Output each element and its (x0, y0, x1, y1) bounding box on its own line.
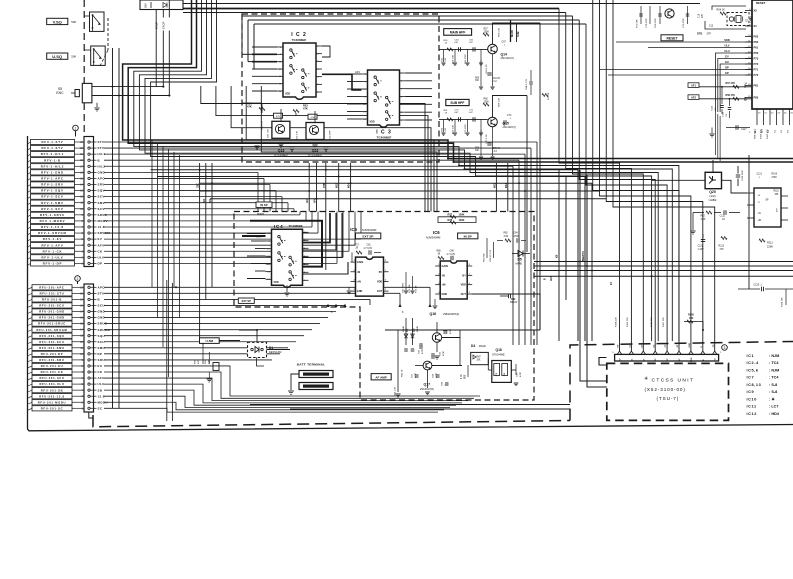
svg-text:TC4066BF: TC4066BF (377, 135, 392, 139)
svg-text:Q15: Q15 (503, 122, 510, 126)
svg-text:IC11: IC11 (747, 405, 757, 409)
svg-text:47K: 47K (276, 116, 280, 118)
svg-text:VULV: VULV (257, 212, 264, 216)
svg-text:IC12: IC12 (747, 412, 757, 416)
svg-text:C75 4V: C75 4V (493, 148, 501, 150)
svg-text:RFV-1-MODV: RFV-1-MODV (40, 219, 66, 223)
svg-text:GND: GND (98, 170, 106, 174)
svg-text:MS3: MS3 (506, 183, 508, 188)
svg-text:SCV: SCV (98, 207, 105, 211)
svg-text:Q17: Q17 (424, 382, 431, 386)
svg-text:MA4D: MA4D (516, 262, 523, 265)
svg-text:MAIN HPF: MAIN HPF (450, 31, 465, 35)
svg-text:1 16V: 1 16V (698, 249, 704, 251)
svg-text:C78 470P: C78 470P (646, 18, 648, 28)
svg-text:C119 100P: C119 100P (742, 170, 744, 181)
svg-text:DP: DP (98, 262, 103, 266)
svg-text:BATT TERMINAL: BATT TERMINAL (297, 362, 326, 366)
svg-text:ULU: ULU (98, 382, 105, 386)
svg-text:470P: 470P (450, 328, 452, 334)
svg-text:R67 1.2K: R67 1.2K (486, 134, 488, 144)
svg-text:P81: P81 (754, 84, 759, 88)
svg-text:VDD: VDD (285, 93, 290, 96)
svg-text:RFU-201-DP: RFU-201-DP (41, 352, 64, 356)
svg-text:RFV-1-H/L1: RFV-1-H/L1 (41, 152, 64, 156)
svg-text:DESSCAM: DESSCAM (269, 351, 281, 354)
svg-text:RESET: RESET (667, 37, 678, 41)
svg-text:47K: 47K (311, 117, 315, 119)
svg-text:RFV-1-EV: RFV-1-EV (43, 237, 62, 241)
svg-text:: S-8: : S-8 (769, 390, 777, 394)
svg-text:SCU: SCU (98, 304, 105, 308)
svg-text:DP: DP (98, 352, 103, 356)
svg-text:R105 22K: R105 22K (627, 317, 629, 327)
svg-text:47K: 47K (720, 248, 725, 251)
svg-text:V.SQ: V.SQ (53, 19, 62, 24)
svg-text:IC8,13: IC8,13 (747, 383, 762, 387)
svg-text:ULU: ULU (724, 49, 729, 53)
svg-text:BY: BY (379, 271, 383, 274)
svg-text:P73: P73 (754, 57, 759, 61)
svg-text:R98 47K: R98 47K (755, 130, 757, 139)
svg-text:2SB1182F5(0): 2SB1182F5(0) (443, 313, 459, 316)
svg-text:: NJM: : NJM (769, 368, 779, 372)
svg-text:RFU-201-SRUGM: RFU-201-SRUGM (37, 328, 68, 332)
svg-text:EXT SP: EXT SP (362, 235, 373, 239)
svg-text:GND: GND (442, 293, 448, 296)
svg-text:SOD: SOD (689, 342, 691, 347)
svg-text:R80: R80 (437, 251, 442, 253)
svg-text:R82: R82 (504, 233, 509, 235)
svg-text:STV: STV (98, 146, 105, 150)
svg-text:NJM3404M: NJM3404M (362, 228, 377, 232)
svg-text:IC1: IC1 (747, 354, 755, 358)
svg-text:C121: C121 (757, 174, 763, 176)
svg-text:C16: C16 (699, 13, 701, 18)
svg-text:R84 1.2K: R84 1.2K (395, 386, 397, 396)
svg-text:+IN: +IN (442, 284, 446, 287)
svg-text:: TC4: : TC4 (769, 361, 779, 365)
svg-text:RFV-1-12.8: RFV-1-12.8 (41, 225, 64, 229)
svg-text:CK: CK (98, 370, 103, 374)
svg-text:SF: SF (766, 199, 770, 202)
svg-text:RFV-1-ULV: RFV-1-ULV (42, 255, 64, 259)
svg-text:IC2-4: IC2-4 (747, 361, 760, 365)
svg-text:AF1: AF1 (691, 83, 696, 87)
svg-text:100K: 100K (459, 213, 465, 216)
svg-text:C117: C117 (741, 128, 747, 131)
svg-text:R87: R87 (477, 357, 482, 359)
svg-text:P71: P71 (754, 68, 759, 72)
svg-text:R74 1K: R74 1K (416, 285, 418, 293)
svg-text:AF2: AF2 (691, 95, 696, 99)
svg-text:AFU: AFU (98, 376, 105, 380)
svg-text:RFV-1-SMV: RFV-1-SMV (41, 201, 64, 205)
svg-text:R60: R60 (475, 77, 480, 79)
svg-text:IC5,6: IC5,6 (747, 368, 759, 372)
svg-text:RFV-1-STV: RFV-1-STV (42, 140, 64, 144)
svg-text:RFU-201-SB: RFU-201-SB (41, 388, 64, 392)
svg-text:R10A 22K: R10A 22K (614, 317, 617, 327)
svg-text:RFU-201-APC: RFU-201-APC (39, 285, 64, 289)
svg-text:R111: R111 (767, 241, 773, 245)
svg-text:RFU-201-GND: RFU-201-GND (39, 316, 64, 320)
svg-text:AF1: AF1 (306, 198, 309, 203)
svg-text:P63: P63 (754, 35, 759, 39)
svg-text:SMV: SMV (98, 201, 105, 205)
svg-text:RFV-1-AFV: RFV-1-AFV (41, 243, 63, 247)
svg-text:D1: D1 (269, 346, 273, 350)
svg-text:RFU-201-SMU: RFU-201-SMU (39, 346, 64, 350)
svg-text:C89 47 6.3V: C89 47 6.3V (490, 249, 492, 262)
svg-text:2SC4116(Y): 2SC4116(Y) (503, 126, 517, 129)
svg-text:✳: ✳ (644, 376, 648, 382)
svg-text:RFV-1-H/L2: RFV-1-H/L2 (41, 164, 64, 168)
svg-text:RFU-201-SC: RFU-201-SC (41, 406, 64, 410)
svg-text:IC9: IC9 (747, 390, 755, 394)
svg-text:SOD: SOD (724, 38, 730, 42)
svg-text:R71 56K: R71 56K (637, 19, 639, 28)
svg-text:MA4D: MA4D (402, 326, 405, 332)
svg-text:50K: 50K (71, 20, 76, 24)
svg-text:VDD: VDD (377, 280, 382, 283)
svg-text:SC: SC (653, 344, 655, 347)
svg-text:-IN: -IN (758, 212, 761, 215)
svg-text:R110: R110 (774, 191, 780, 193)
svg-text:R57: R57 (484, 29, 489, 31)
svg-text:47K: 47K (689, 317, 694, 320)
svg-text:ULV: ULV (98, 255, 105, 259)
svg-text:47K: 47K (303, 107, 308, 111)
svg-text:: S-8: : S-8 (769, 383, 777, 387)
svg-text:IC10: IC10 (747, 397, 757, 401)
svg-text:R106 22K: R106 22K (651, 317, 653, 327)
svg-text:C125 .1: C125 .1 (754, 284, 763, 287)
svg-text:B: B (98, 298, 101, 302)
svg-text:RFU-201-SRUC: RFU-201-SRUC (38, 322, 66, 326)
svg-text:R70 1K: R70 1K (548, 92, 550, 100)
svg-text:P60: P60 (754, 51, 759, 55)
svg-text:470P: 470P (520, 371, 522, 377)
svg-text:: TC4: : TC4 (769, 376, 779, 380)
svg-text:4.7K: 4.7K (461, 374, 463, 379)
svg-text:C122: C122 (698, 245, 704, 248)
svg-text:UHB2: UHB2 (709, 198, 717, 202)
svg-text:RFV-1-SRV: RFV-1-SRV (41, 183, 63, 187)
svg-text:R9C: R9C (205, 359, 207, 364)
svg-text:MS2: MS2 (337, 183, 339, 188)
svg-text:C72 470P: C72 470P (465, 124, 467, 134)
svg-text:RFU-201-12.8: RFU-201-12.8 (39, 394, 64, 398)
svg-text:229K: 229K (767, 245, 773, 249)
svg-text:C81: C81 (367, 245, 372, 247)
svg-text:TO: TO (713, 344, 715, 347)
svg-text:KB: KB (557, 254, 559, 258)
svg-text:R81 82K: R81 82K (484, 253, 486, 262)
svg-text:276K: 276K (772, 177, 778, 179)
svg-text:C90: C90 (511, 298, 516, 301)
svg-text:47K: 47K (247, 105, 252, 109)
svg-text:D4: D4 (471, 344, 475, 348)
svg-text:1: 1 (75, 127, 77, 131)
svg-text:R68 1.5K: R68 1.5K (499, 97, 501, 107)
svg-text:R88: R88 (465, 374, 467, 379)
svg-text:RFV-1-APC: RFV-1-APC (41, 177, 63, 181)
svg-text:U-5M: U-5M (206, 339, 214, 343)
svg-text:4.7 6.3V: 4.7 6.3V (447, 254, 456, 256)
svg-text:Q14: Q14 (501, 53, 508, 57)
svg-text:C8A 2.2 6V: C8A 2.2 6V (525, 78, 528, 90)
svg-text:B: B (98, 158, 101, 162)
svg-text:470P: 470P (443, 350, 445, 356)
svg-text:RFV-1-SCV: RFV-1-SCV (41, 207, 63, 211)
svg-text:SC: SC (655, 358, 657, 361)
svg-text:R56 5.6K: R56 5.6K (499, 27, 501, 37)
svg-text:RFU-201-SCU: RFU-201-SCU (39, 304, 64, 308)
svg-text:U.SQ: U.SQ (52, 54, 62, 59)
svg-text:2SC4617(R): 2SC4617(R) (420, 388, 434, 391)
svg-text:RFU-201-GND: RFU-201-GND (39, 310, 64, 314)
svg-text:RFU-201-STU: RFU-201-STU (40, 291, 65, 295)
svg-text:SCV: SCV (98, 195, 105, 199)
svg-text:3: 3 (724, 346, 726, 350)
svg-text:VDD: VDD (370, 121, 375, 124)
svg-text:R51 4.7K: R51 4.7K (262, 120, 264, 130)
svg-text:P61: P61 (754, 46, 759, 50)
svg-text:R54 1K: R54 1K (717, 9, 726, 12)
svg-text:EU: EU (98, 364, 103, 368)
svg-text:P62: P62 (754, 40, 759, 44)
svg-text:SB: SB (98, 388, 103, 392)
svg-text:ULV: ULV (725, 43, 730, 47)
svg-text:SMU: SMU (98, 346, 106, 350)
svg-text:ENOP: ENOP (161, 21, 165, 29)
svg-text:AF3: AF3 (209, 198, 212, 203)
svg-text:VDD: VDD (461, 284, 466, 287)
svg-text:RFU-201-CK: RFU-201-CK (41, 370, 64, 374)
svg-text:(X52-3100-00): (X52-3100-00) (645, 387, 686, 392)
svg-text:SOD: SOD (691, 357, 693, 362)
svg-text:C13: C13 (709, 26, 714, 28)
svg-text:C66 470P: C66 470P (465, 54, 467, 64)
svg-text:: HD4: : HD4 (769, 412, 780, 416)
svg-text:Q16: Q16 (430, 312, 437, 316)
svg-text:DP: DP (725, 65, 729, 69)
svg-text:IC6: IC6 (433, 230, 440, 235)
svg-text:MIM: MIM (145, 3, 148, 8)
svg-text:C67: C67 (502, 41, 507, 44)
svg-text:SUB HPF: SUB HPF (450, 101, 464, 105)
svg-text:EU: EU (725, 60, 729, 64)
svg-text:DTB: DTB (697, 33, 702, 36)
svg-text:R73: R73 (355, 245, 360, 247)
svg-text:R109: R109 (772, 174, 778, 176)
svg-text:AF AMP: AF AMP (375, 375, 386, 379)
svg-text:RFV-1-SCV: RFV-1-SCV (41, 195, 63, 199)
svg-text:SCU: SCU (98, 340, 105, 344)
svg-text:AFC: AFC (550, 276, 553, 281)
svg-text:3.9K: 3.9K (504, 236, 509, 238)
svg-text:EXT SP: EXT SP (242, 299, 251, 303)
svg-text:470P: 470P (422, 348, 424, 354)
svg-text:RFU-201-AFU: RFU-201-AFU (39, 376, 64, 380)
svg-text:MA4D: MA4D (416, 326, 419, 332)
svg-text:AFV: AFV (355, 70, 360, 74)
svg-text:MS1: MS1 (494, 183, 496, 188)
svg-text:R118 10K: R118 10K (782, 297, 784, 307)
svg-text:RFU-201-SCU: RFU-201-SCU (39, 340, 64, 344)
svg-text:CTCSS UNIT: CTCSS UNIT (652, 378, 695, 384)
svg-text:P70: P70 (754, 73, 759, 77)
svg-text:+IN: +IN (758, 219, 762, 222)
svg-text:AF2: AF2 (203, 198, 206, 203)
svg-text:NJM3404M: NJM3404M (426, 236, 441, 240)
svg-text:GND: GND (357, 290, 363, 293)
svg-text:20K: 20K (477, 360, 482, 362)
svg-text:RFU-201-ULU: RFU-201-ULU (39, 382, 64, 386)
svg-text:SRV: SRV (98, 183, 105, 187)
svg-text:CK: CK (98, 249, 103, 253)
svg-text:Q23: Q23 (312, 149, 319, 153)
svg-text:-IN: -IN (357, 271, 361, 274)
svg-text:GND: GND (98, 316, 106, 320)
svg-text:SRU: SRU (98, 358, 105, 362)
svg-text:ENC: ENC (56, 91, 64, 95)
svg-text:C86: C86 (450, 251, 455, 253)
svg-text:DTB: DTB (324, 183, 326, 188)
svg-text:EXT: EXT (777, 207, 779, 212)
svg-text:D5: D5 (518, 258, 522, 262)
svg-text:RFU-201-SQU: RFU-201-SQU (39, 334, 64, 338)
svg-text:TO: TO (715, 358, 717, 361)
svg-text:-IN: -IN (442, 274, 446, 277)
svg-text:RFV-1-CK: RFV-1-CK (43, 249, 63, 253)
svg-text:P72: P72 (754, 62, 759, 66)
svg-text:R103 47K: R103 47K (767, 129, 769, 139)
svg-text:IN SP: IN SP (464, 235, 472, 239)
svg-text:IN SP: IN SP (260, 203, 267, 207)
svg-text:RFV-1-B: RFV-1-B (44, 158, 61, 162)
svg-text:IC5: IC5 (350, 227, 357, 232)
svg-text:C79 470P: C79 470P (683, 18, 685, 28)
svg-text:R53 4.7K: R53 4.7K (297, 130, 299, 140)
svg-text:2: 2 (77, 277, 79, 281)
svg-text:RESET: RESET (756, 1, 766, 5)
svg-text:Q13: Q13 (278, 149, 285, 153)
svg-text:C118: C118 (723, 111, 725, 117)
svg-text:TC4066BF: TC4066BF (292, 38, 307, 42)
svg-text:37P: 37P (707, 33, 712, 36)
svg-text:STU: STU (98, 291, 105, 295)
svg-text:RFU-201-EU: RFU-201-EU (41, 364, 64, 368)
svg-text:DTC144EU: DTC144EU (274, 153, 287, 157)
svg-text:50K: 50K (71, 55, 76, 59)
svg-text:MA4D: MA4D (479, 345, 486, 348)
svg-text:CBC: CBC (198, 183, 200, 188)
svg-text:100K: 100K (459, 219, 465, 222)
svg-text:RFV-1-GND: RFV-1-GND (41, 170, 64, 174)
svg-text:: NJM: : NJM (769, 354, 779, 358)
svg-text:DTC144EU: DTC144EU (308, 153, 321, 157)
svg-text:12.8: 12.8 (98, 394, 105, 398)
svg-text:OUT: OUT (377, 290, 383, 293)
svg-text:470P: 470P (436, 372, 438, 378)
svg-text:P82: P82 (754, 96, 759, 100)
svg-text:R79 15K: R79 15K (409, 284, 411, 293)
svg-text:470P: 470P (514, 236, 520, 238)
svg-text:C60 .047: C60 .047 (268, 128, 270, 138)
svg-text:C84: C84 (514, 233, 519, 235)
svg-text:EV: EV (725, 54, 729, 58)
svg-text:GND: GND (98, 310, 106, 314)
svg-text:(TSU-7): (TSU-7) (657, 396, 680, 401)
svg-text:R100 47K: R100 47K (761, 129, 763, 139)
svg-text:R66: R66 (484, 99, 489, 101)
svg-text:AFV: AFV (98, 243, 105, 247)
svg-text:C61 470P: C61 470P (330, 130, 332, 140)
svg-text:: ✳: : ✳ (769, 396, 775, 401)
svg-text:BEEP/TO: BEEP/TO (583, 251, 585, 261)
svg-text:C73: C73 (507, 114, 512, 117)
svg-text:TC4066BF: TC4066BF (289, 224, 303, 228)
svg-text:IC7: IC7 (747, 376, 755, 380)
svg-text:RFV-1-STV: RFV-1-STV (42, 146, 64, 150)
svg-text:RFV-1-SRVC: RFV-1-SRVC (40, 213, 65, 217)
svg-text:R59 1.2K: R59 1.2K (486, 64, 488, 74)
svg-text:R86 1K: R86 1K (402, 369, 404, 377)
svg-text:470P: 470P (415, 372, 417, 378)
svg-text:68 10V: 68 10V (510, 302, 518, 304)
svg-text:VDD: VDD (274, 281, 279, 284)
svg-text:SQV: SQV (98, 189, 105, 193)
svg-text:+IN: +IN (357, 280, 361, 283)
svg-text:C64 6V: C64 6V (493, 78, 501, 80)
svg-text:3.9K: 3.9K (701, 218, 706, 221)
svg-text:EV: EV (98, 237, 103, 241)
svg-text:BY: BY (462, 274, 466, 277)
svg-text:12.8: 12.8 (98, 225, 105, 229)
svg-text:EP: EP (725, 71, 729, 75)
svg-text:SQU: SQU (98, 334, 105, 338)
svg-text:OUT: OUT (461, 293, 467, 296)
svg-text:RFV-1-DP: RFV-1-DP (43, 262, 63, 266)
svg-text:RFU-201-SRU: RFU-201-SRU (39, 358, 64, 362)
svg-text:: LC7: : LC7 (769, 405, 779, 409)
svg-text:R107 22K: R107 22K (663, 317, 665, 327)
svg-text:DTA144WE: DTA144WE (492, 354, 505, 357)
svg-text:27P: 27P (702, 13, 704, 18)
svg-text:47K: 47K (198, 360, 200, 364)
svg-text:C54 470P: C54 470P (655, 18, 657, 28)
svg-text:RFU-201-B: RFU-201-B (42, 298, 62, 302)
svg-text:Q18: Q18 (496, 348, 502, 352)
svg-text:RFV-1-SQV: RFV-1-SQV (41, 189, 63, 193)
svg-text:X1: X1 (754, 24, 758, 28)
svg-text:SC: SC (98, 406, 103, 410)
svg-text:RFV-1-SRVGM: RFV-1-SRVGM (38, 231, 66, 235)
svg-text:STV: STV (98, 140, 105, 144)
svg-text:4.7 6.3V: 4.7 6.3V (364, 248, 373, 250)
svg-text:X2: X2 (754, 9, 758, 13)
svg-text:C113: C113 (712, 105, 714, 111)
svg-text:R69: R69 (475, 147, 480, 149)
svg-text:RFU-201-MODU: RFU-201-MODU (38, 400, 66, 404)
svg-text:GAIN: GAIN (357, 261, 363, 264)
svg-text:2SC4116(Y): 2SC4116(Y) (501, 57, 515, 60)
svg-text:GAIN: GAIN (442, 265, 448, 268)
